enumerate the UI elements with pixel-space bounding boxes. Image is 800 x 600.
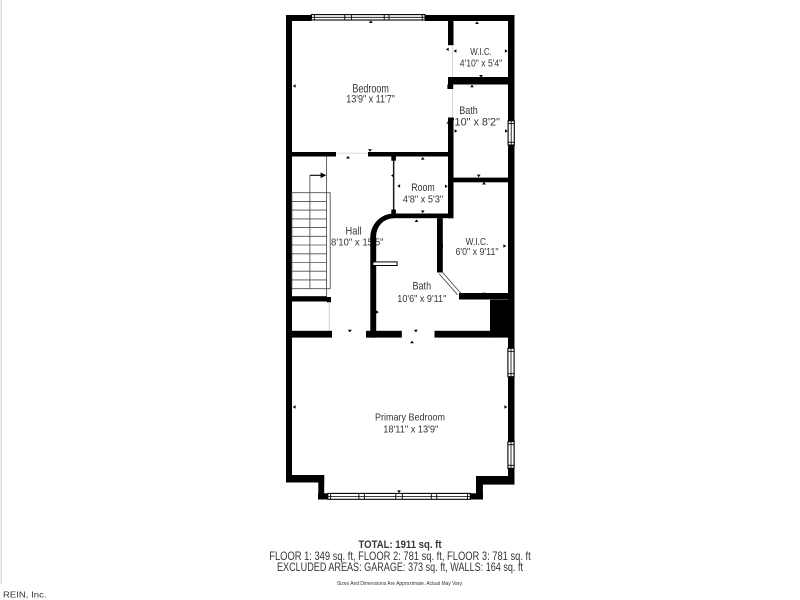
svg-text:EXCLUDED AREAS: GARAGE: 373 sq: EXCLUDED AREAS: GARAGE: 373 sq. ft, WALL… [277,561,524,574]
svg-text:18'11" x 13'9": 18'11" x 13'9" [383,424,438,435]
svg-text:REIN, Inc.: REIN, Inc. [3,590,47,600]
svg-text:4'10" x 5'4": 4'10" x 5'4" [460,59,503,70]
svg-text:4'10" x 8'2": 4'10" x 8'2" [446,116,500,128]
svg-text:W.I.C.: W.I.C. [470,47,492,58]
svg-text:Sizes And Dimensions Are Appro: Sizes And Dimensions Are Approximate. Ac… [337,581,463,587]
svg-text:Room: Room [411,182,435,194]
svg-text:Bath: Bath [413,281,432,293]
svg-text:Hall: Hall [346,226,362,238]
svg-text:Bath: Bath [459,105,478,117]
svg-text:Primary Bedroom: Primary Bedroom [375,413,445,424]
svg-text:6'0" x 9'11": 6'0" x 9'11" [455,247,498,258]
svg-text:4'8" x 5'3": 4'8" x 5'3" [403,194,444,205]
svg-text:13'9" x 11'7": 13'9" x 11'7" [346,93,395,105]
svg-text:10'6" x 9'11": 10'6" x 9'11" [397,293,446,305]
